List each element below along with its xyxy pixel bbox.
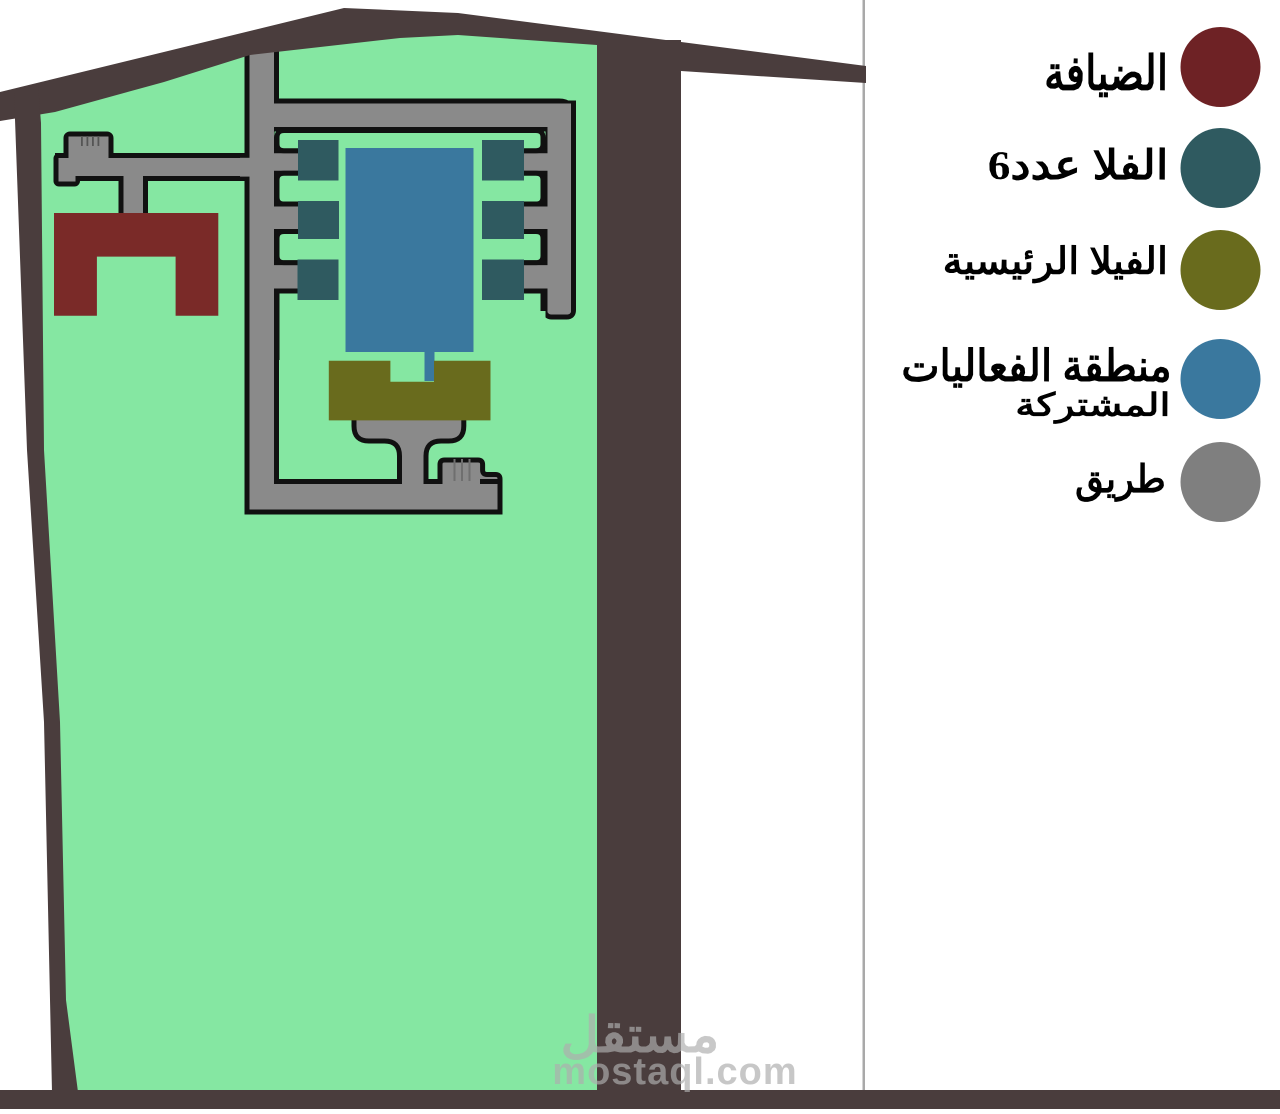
svg-text:mostaql.com: mostaql.com (552, 1051, 797, 1093)
